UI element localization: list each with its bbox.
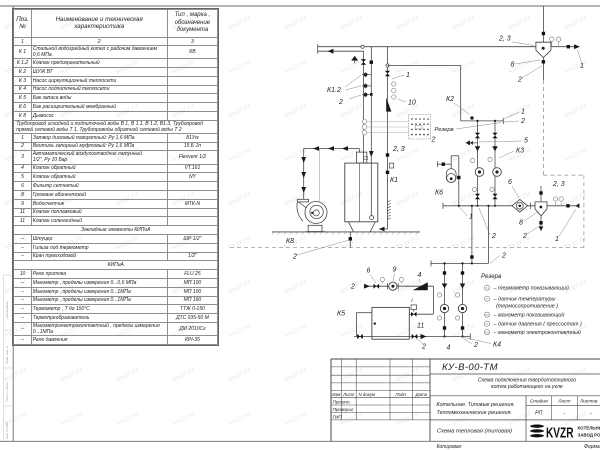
svg-text:– манометр показывающий: – манометр показывающий: [493, 312, 565, 319]
svg-text:котла работающего на угле: котла работающего на угле: [491, 384, 563, 390]
svg-text:К2: К2: [446, 96, 454, 103]
svg-text:Листов: Листов: [579, 399, 598, 405]
svg-text:Лист: Лист: [557, 399, 570, 405]
svg-text:Дата: Дата: [415, 392, 428, 397]
svg-text:Мп: Мп: [485, 313, 489, 317]
svg-text:2: 2: [517, 77, 522, 84]
svg-text:2: 2: [522, 233, 527, 240]
svg-text:2, 3: 2, 3: [392, 146, 405, 153]
svg-text:4: 4: [418, 272, 422, 279]
svg-text:Проверил: Проверил: [333, 407, 354, 412]
svg-text:1: 1: [555, 236, 559, 243]
svg-text:1: 1: [521, 109, 525, 116]
svg-text:Подп. и дата: Подп. и дата: [5, 382, 9, 401]
svg-text:6: 6: [367, 268, 371, 275]
svg-text:К3: К3: [516, 148, 524, 155]
svg-text:i: i: [411, 298, 413, 304]
svg-text:2: 2: [501, 253, 506, 260]
svg-text:Тt: Тt: [486, 297, 489, 301]
svg-text:9: 9: [393, 267, 397, 274]
svg-text:КУ-В-00-ТМ: КУ-В-00-ТМ: [442, 362, 498, 373]
svg-text:К6: К6: [435, 190, 443, 197]
svg-text:Схема тепловая (типовая): Схема тепловая (типовая): [437, 429, 512, 435]
svg-text:2, 3: 2, 3: [552, 181, 565, 188]
svg-text:2: 2: [473, 342, 478, 349]
svg-text:KVZR: KVZR: [546, 426, 574, 442]
svg-text:5: 5: [524, 138, 528, 145]
svg-text:2: 2: [350, 284, 355, 291]
svg-text:Схема подключения твердотоплив: Схема подключения твердотопливного: [478, 377, 576, 383]
svg-text:– датчик температуры: – датчик температуры: [493, 297, 556, 303]
svg-text:– термометр показывающий: – термометр показывающий: [493, 285, 569, 292]
svg-text:Изм: Изм: [332, 392, 340, 397]
svg-text:11: 11: [417, 323, 424, 330]
svg-text:Pt: Pt: [486, 322, 489, 326]
svg-text:Лист: Лист: [342, 392, 355, 397]
svg-text:Резерв: Резерв: [481, 273, 502, 280]
svg-text:Копировал: Копировал: [437, 444, 462, 450]
svg-text:Проект.: Проект.: [333, 399, 351, 404]
svg-text:8: 8: [519, 220, 523, 227]
svg-text:Котельная. Типовые решения.: Котельная. Типовые решения.: [437, 402, 515, 408]
svg-text:N докум: N докум: [359, 392, 376, 397]
svg-text:2: 2: [491, 233, 496, 240]
svg-text:РП: РП: [535, 411, 542, 417]
svg-text:2: 2: [431, 137, 436, 144]
svg-text:КОТЕЛЬНЫ: КОТЕЛЬНЫ: [578, 426, 600, 431]
svg-text:2: 2: [520, 118, 525, 125]
svg-text:1: 1: [406, 72, 410, 79]
svg-text:4: 4: [447, 345, 451, 352]
svg-text:ГИП: ГИП: [333, 414, 343, 419]
svg-text:1: 1: [469, 214, 473, 221]
svg-text:Резерв: Резерв: [435, 127, 454, 133]
svg-text:Тепломеханические решения.: Тепломеханические решения.: [437, 410, 512, 416]
svg-text:Взам. инв. N: Взам. инв. N: [5, 345, 9, 363]
svg-text:-: -: [564, 411, 566, 417]
svg-text:Формат: Формат: [584, 444, 600, 450]
svg-text:1: 1: [580, 63, 584, 70]
svg-text:ЗАВОД РО: ЗАВОД РО: [578, 433, 600, 438]
svg-text:К4: К4: [493, 342, 501, 349]
svg-text:Инв. N подл.: Инв. N подл.: [5, 421, 9, 439]
svg-text:8: 8: [511, 62, 515, 69]
svg-text:2: 2: [292, 254, 297, 261]
svg-text:Согласовано: Согласовано: [5, 301, 9, 320]
svg-text:2: 2: [421, 344, 426, 351]
svg-text:К8: К8: [286, 238, 294, 245]
svg-text:10: 10: [408, 100, 416, 107]
svg-text:6: 6: [508, 179, 512, 186]
svg-text:2: 2: [338, 99, 343, 106]
svg-text:-: -: [590, 411, 592, 417]
svg-text:– датчик давления ( прессостат: – датчик давления ( прессостат ): [493, 322, 582, 328]
svg-text:К1.2: К1.2: [327, 87, 341, 94]
svg-text:Стадия: Стадия: [530, 399, 548, 405]
svg-text:(термосопротивление ): (термосопротивление ): [496, 304, 558, 310]
svg-text:Подп.: Подп.: [395, 392, 407, 397]
svg-text:2, 3: 2, 3: [498, 36, 511, 43]
svg-text:К1: К1: [390, 177, 398, 184]
svg-text:К5: К5: [337, 311, 345, 318]
svg-text:– манометр электроконтактный: – манометр электроконтактный: [493, 329, 581, 336]
